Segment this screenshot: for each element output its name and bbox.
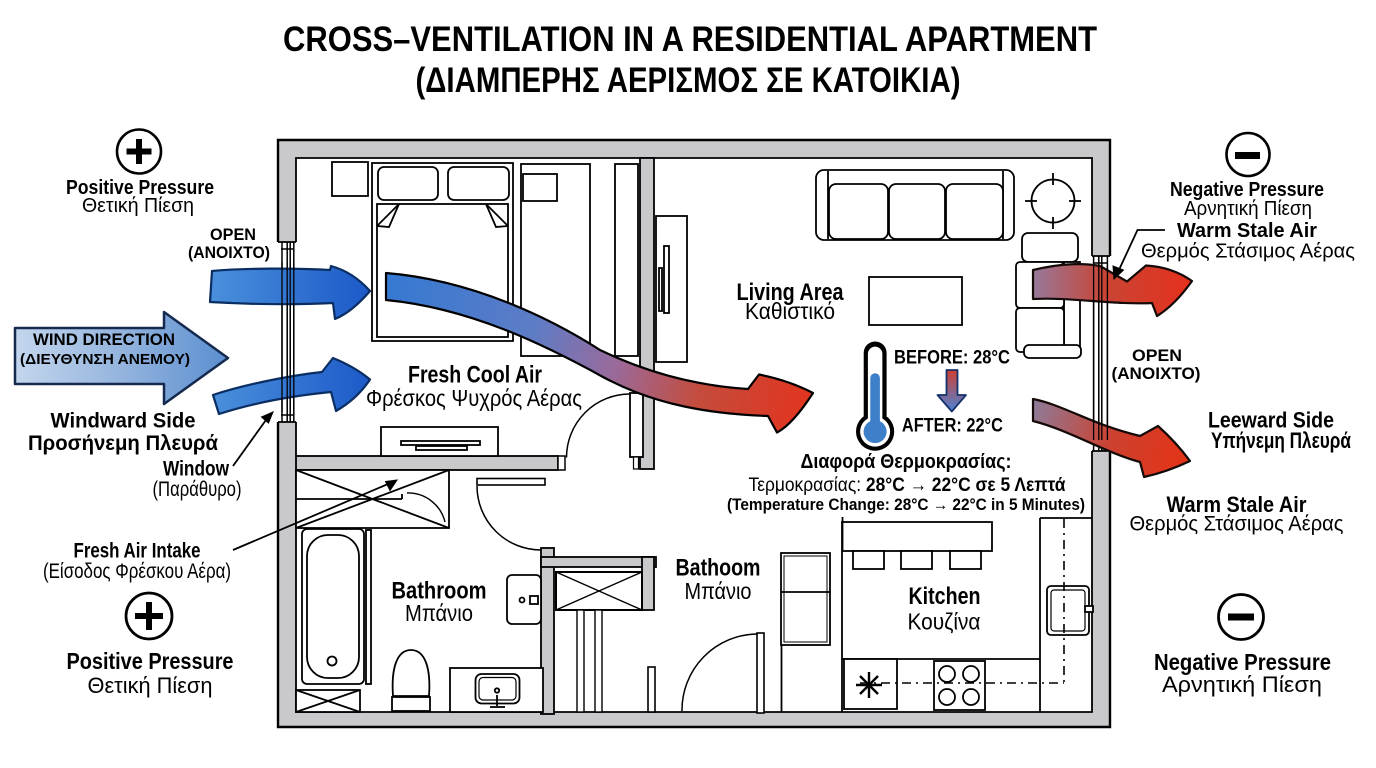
svg-text:Θερμός Στάσιμος Αέρας: Θερμός Στάσιμος Αέρας [1130,513,1344,536]
svg-text:AFTER: 22°C: AFTER: 22°C [902,416,1003,437]
svg-text:Fresh Air Intake: Fresh Air Intake [74,539,201,563]
svg-text:Μπάνιο: Μπάνιο [405,600,473,626]
svg-text:OPEN: OPEN [210,226,256,244]
svg-text:Warm Stale Air: Warm Stale Air [1177,220,1317,242]
svg-text:Θετική Πίεση: Θετική Πίεση [82,195,194,217]
svg-text:Προσήνεμη Πλευρά: Προσήνεμη Πλευρά [28,431,218,455]
svg-text:(Παράθυρο): (Παράθυρο) [153,478,242,501]
svg-text:Window: Window [163,457,229,481]
svg-text:Καθιστικό: Καθιστικό [745,298,835,324]
svg-text:Kitchen: Kitchen [909,583,981,610]
svg-text:BEFORE: 28°C: BEFORE: 28°C [894,348,1010,369]
svg-text:(ΑΝΟΙΧΤΟ): (ΑΝΟΙΧΤΟ) [1112,365,1201,383]
svg-text:Αρνητική Πίεση: Αρνητική Πίεση [1162,672,1322,697]
svg-text:Διαφορά Θερμοκρασίας:: Διαφορά Θερμοκρασίας: [801,451,1012,473]
svg-text:(ΔΙΑΜΠΕΡΗΣ ΑΕΡΙΣΜΟΣ ΣΕ ΚΑΤΟΙΚΙ: (ΔΙΑΜΠΕΡΗΣ ΑΕΡΙΣΜΟΣ ΣΕ ΚΑΤΟΙΚΙΑ) [416,61,961,100]
svg-text:Θετική Πίεση: Θετική Πίεση [88,673,213,698]
svg-text:Τερμοκρασίας: 28°C → 22°C σε 5: Τερμοκρασίας: 28°C → 22°C σε 5 Λεπτά [749,475,1066,496]
svg-text:Κουζίνα: Κουζίνα [908,609,981,635]
svg-text:WIND DIRECTION: WIND DIRECTION [33,331,175,349]
svg-text:Υπήνεμη Πλευρά: Υπήνεμη Πλευρά [1211,428,1351,453]
svg-text:Θερμός Στάσιμος Αέρας: Θερμός Στάσιμος Αέρας [1141,241,1355,263]
svg-text:Φρέσκος Ψυχρός Αέρας: Φρέσκος Ψυχρός Αέρας [366,385,582,411]
svg-text:Windward Side: Windward Side [51,409,196,433]
svg-text:Αρνητική Πίεση: Αρνητική Πίεση [1184,198,1312,220]
svg-text:(ΑΝΟΙΧΤΟ): (ΑΝΟΙΧΤΟ) [188,244,270,262]
svg-text:(Temperature Change: 28°C → 22: (Temperature Change: 28°C → 22°C in 5 Mi… [727,496,1085,514]
svg-text:Positive Pressure: Positive Pressure [67,648,234,674]
svg-text:(Είσοδος Φρέσκου Αέρα): (Είσοδος Φρέσκου Αέρα) [43,560,231,583]
svg-text:OPEN: OPEN [1132,347,1182,365]
svg-text:CROSS–VENTILATION IN A RESIDEN: CROSS–VENTILATION IN A RESIDENTIAL APART… [283,20,1097,59]
svg-text:(ΔΙΕΥΘΥΝΣΗ ΑΝΕΜΟΥ): (ΔΙΕΥΘΥΝΣΗ ΑΝΕΜΟΥ) [20,351,190,368]
svg-text:Μπάνιο: Μπάνιο [685,578,752,604]
